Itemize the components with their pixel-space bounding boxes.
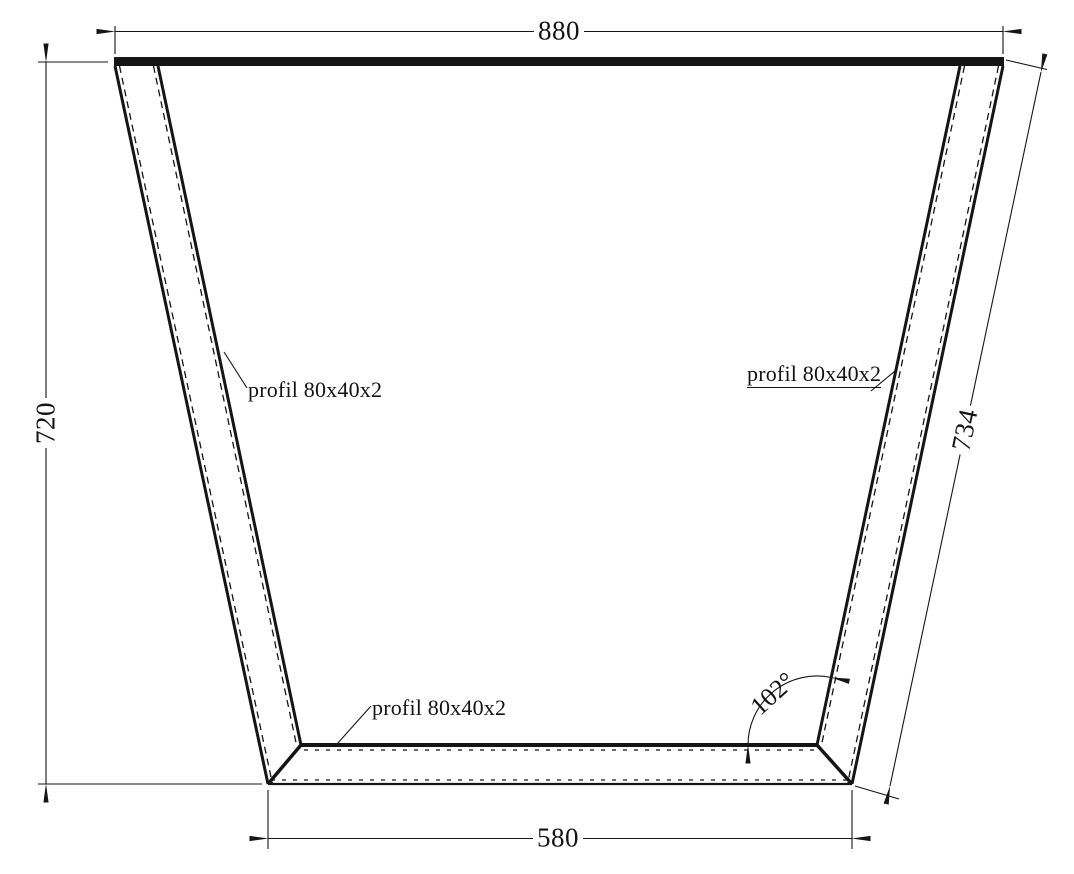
dimension-text-bottom-width: 580 xyxy=(533,825,583,852)
miter-joint-right xyxy=(817,745,852,784)
profile-label-right: profil 80x40x2 xyxy=(747,363,881,388)
dimension-text-top-width: 880 xyxy=(534,18,584,45)
frame-left-leg xyxy=(115,66,301,784)
profile-label-left: profil 80x40x2 xyxy=(248,379,382,401)
frame-bottom-member xyxy=(268,745,852,784)
dimension-text-left-height: 720 xyxy=(33,398,60,448)
miter-joint-left xyxy=(268,745,301,784)
profile-label-bottom: profil 80x40x2 xyxy=(372,697,506,719)
drawing-canvas: 880 720 734 580 102° profil 80x40x2 prof… xyxy=(0,0,1074,874)
leader-bottom-profile xyxy=(337,706,371,744)
frame-drawing-svg xyxy=(0,0,1074,874)
leader-left-profile xyxy=(224,352,247,388)
